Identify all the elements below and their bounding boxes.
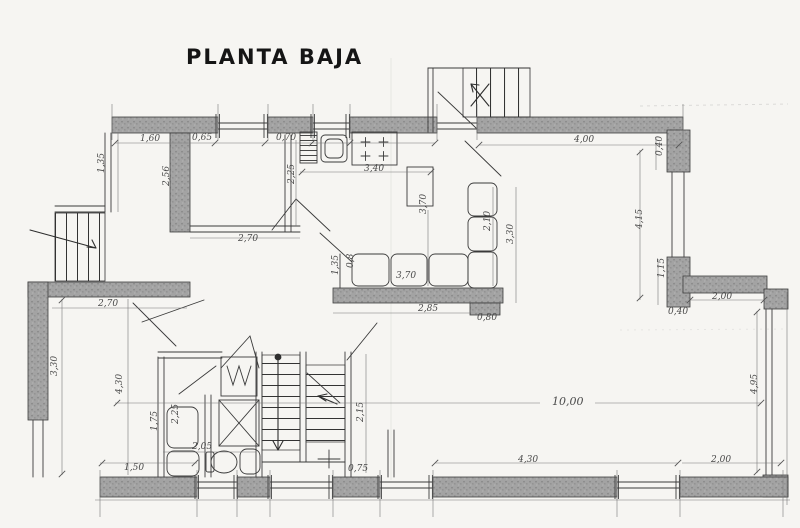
stair-cross-mark bbox=[318, 450, 340, 468]
dim-label: 2,10 bbox=[483, 211, 493, 232]
washing-machine bbox=[221, 357, 257, 396]
dim-label: 2,25 bbox=[287, 164, 297, 185]
dim-label: 1,35 bbox=[331, 255, 341, 275]
dim-label: 2,05 bbox=[191, 442, 212, 452]
dim-label: 2,85 bbox=[417, 304, 438, 314]
side-stairs-left bbox=[30, 213, 105, 281]
inner-door-swing bbox=[465, 141, 501, 176]
dim-label: 3,30 bbox=[50, 356, 60, 376]
page-title: PLANTA BAJA bbox=[186, 45, 363, 69]
dim-label: 2,70 bbox=[237, 234, 258, 244]
dimension-lines bbox=[52, 133, 790, 505]
dim-label: 4,00 bbox=[573, 135, 594, 145]
dim-label: 1,50 bbox=[124, 463, 144, 473]
dim-label: 0,40 bbox=[655, 136, 665, 156]
dim-label: 0,80 bbox=[477, 313, 497, 323]
dim-label: 0,8 bbox=[346, 253, 356, 268]
main-staircase bbox=[262, 352, 345, 468]
floor-plan-canvas: PLANTA BAJA bbox=[0, 0, 800, 528]
dim-label: 1,60 bbox=[140, 134, 160, 144]
bath-sink bbox=[240, 449, 260, 474]
dim-label: 1,35 bbox=[97, 153, 107, 173]
stove bbox=[352, 132, 397, 165]
kitchen-unit-hatched bbox=[300, 132, 317, 163]
dim-label: 1,15 bbox=[657, 258, 667, 278]
windows bbox=[33, 123, 772, 488]
shower bbox=[219, 400, 259, 446]
dim-label: 2,70 bbox=[97, 299, 118, 309]
dim-label: 0,65 bbox=[192, 133, 212, 143]
dimension-labels: 1,60 0,65 0,70 3,40 4,00 1,35 2,56 2,25 … bbox=[50, 133, 760, 474]
dim-label: 2,56 bbox=[162, 166, 172, 187]
dim-label: 0,70 bbox=[276, 133, 296, 143]
dim-label: 0,40 bbox=[668, 307, 688, 317]
dim-label: 4,30 bbox=[115, 374, 125, 395]
dim-label: 4,30 bbox=[517, 455, 538, 465]
dim-label: 2,25 bbox=[171, 404, 181, 425]
kitchen-sink bbox=[321, 135, 347, 162]
dim-label: 3,70 bbox=[419, 194, 429, 214]
dim-label: 10,00 bbox=[552, 395, 584, 408]
dim-label: 2,00 bbox=[710, 455, 731, 465]
dim-label: 3,40 bbox=[364, 164, 384, 174]
dim-label: 0,75 bbox=[348, 464, 368, 474]
dim-label: 1,75 bbox=[150, 411, 160, 431]
dim-label: 2,15 bbox=[356, 402, 366, 423]
dim-label: 4,95 bbox=[750, 374, 760, 395]
dim-label: 3,30 bbox=[506, 224, 516, 244]
dim-label: 2,00 bbox=[711, 292, 732, 302]
dim-label: 3,70 bbox=[396, 271, 416, 281]
floor-plan-page: PLANTA BAJA bbox=[0, 0, 800, 528]
dim-label: 4,15 bbox=[635, 209, 645, 230]
